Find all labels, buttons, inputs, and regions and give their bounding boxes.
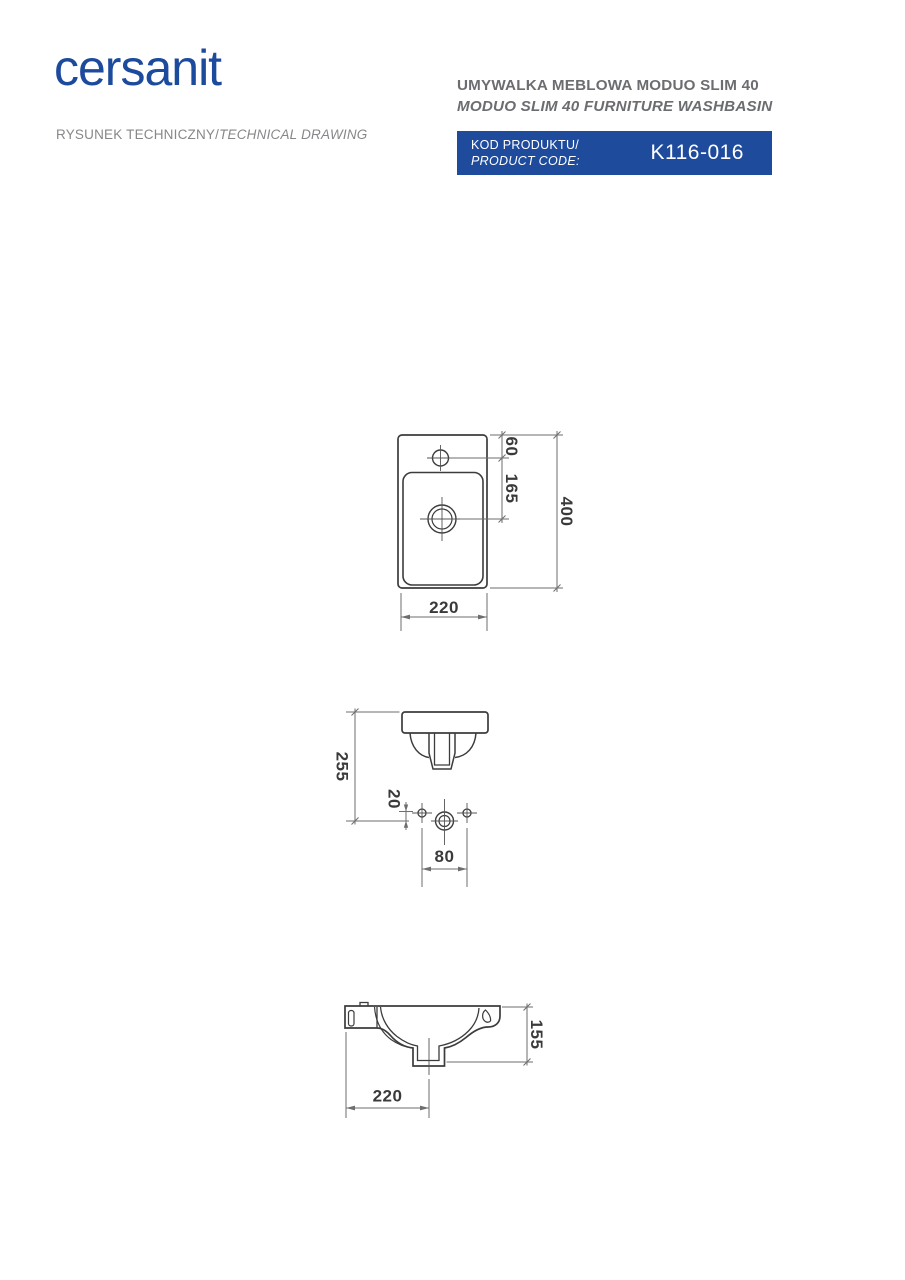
drawing-type-pl: RYSUNEK TECHNICZNY/ — [56, 127, 219, 142]
product-code-value: K116-016 — [650, 141, 744, 165]
drain-hole-side — [431, 799, 458, 845]
fixing-hole-left — [412, 803, 432, 823]
fixing-hole-right — [457, 803, 477, 823]
section-view-dimensions: 155 220 — [346, 1004, 546, 1119]
dim-depth: 220 — [429, 598, 459, 617]
technical-drawing-page: cersanit RYSUNEK TECHNICZNY/TECHNICAL DR… — [0, 0, 905, 1280]
dim-drain-position: 220 — [373, 1087, 403, 1106]
dim-hole-spacing: 80 — [435, 847, 455, 866]
dim-height-155: 155 — [527, 1020, 546, 1050]
product-title: UMYWALKA MEBLOWA MODUO SLIM 40 MODUO SLI… — [457, 75, 772, 117]
basin-section-outline — [345, 1003, 500, 1076]
dim-drain-offset: 165 — [502, 474, 521, 504]
product-code-box: KOD PRODUKTU/ PRODUCT CODE: K116-016 — [457, 131, 772, 175]
product-code-label-pl: KOD PRODUKTU/ — [471, 137, 580, 153]
top-view-drawing: 60 165 400 220 — [370, 420, 600, 650]
side-view-dimensions: 255 20 80 — [333, 709, 468, 888]
tap-hole — [427, 445, 454, 471]
basin-side-outline — [402, 712, 488, 769]
cersanit-logo: cersanit — [54, 42, 221, 94]
product-title-pl: UMYWALKA MEBLOWA MODUO SLIM 40 — [457, 75, 772, 96]
drawing-type-label: RYSUNEK TECHNICZNY/TECHNICAL DRAWING — [56, 127, 368, 142]
dim-tap-offset: 60 — [502, 437, 521, 457]
dim-length: 400 — [557, 497, 576, 527]
dim-hole-offset: 20 — [385, 789, 404, 809]
product-code-labels: KOD PRODUKTU/ PRODUCT CODE: — [471, 137, 580, 169]
drawing-type-en: TECHNICAL DRAWING — [219, 127, 367, 142]
drain-hole — [420, 497, 464, 541]
section-view-drawing: 155 220 — [330, 985, 570, 1130]
top-view-dimensions: 60 165 400 220 — [401, 431, 576, 631]
product-code-label-en: PRODUCT CODE: — [471, 153, 580, 169]
dim-height-255: 255 — [333, 752, 352, 782]
product-title-en: MODUO SLIM 40 FURNITURE WASHBASIN — [457, 96, 772, 117]
side-view-drawing: 255 20 80 — [330, 690, 560, 900]
